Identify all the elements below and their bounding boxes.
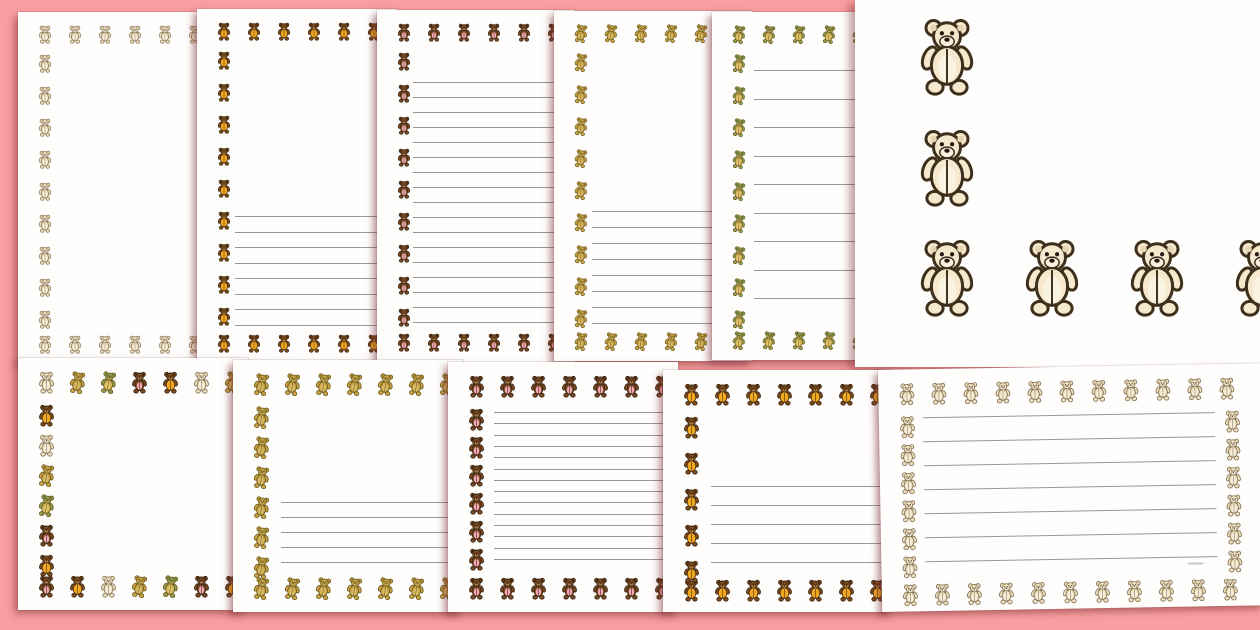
writing-line (281, 532, 455, 533)
teddy-bear-icon (530, 577, 547, 600)
teddy-bear-icon (603, 23, 620, 44)
teddy-bear-icon (683, 524, 700, 547)
teddy-bear-icon (899, 415, 916, 438)
teddy-bear-icon (457, 23, 471, 42)
writing-line (923, 412, 1215, 418)
teddy-bear-icon (427, 23, 441, 42)
writing-line (281, 502, 455, 503)
teddy-bear-icon (38, 371, 55, 394)
teddy-bear-icon (337, 334, 351, 353)
teddy-bear-icon (38, 150, 52, 169)
writing-line (235, 216, 397, 217)
teddy-bear-icon (38, 575, 55, 598)
teddy-bear-icon (930, 382, 947, 405)
teddy-bear-icon (217, 179, 231, 198)
teddy-bear-icon (158, 335, 172, 354)
teddy-bear-icon (731, 85, 748, 106)
teddy-bear-icon (251, 495, 271, 520)
writing-line (494, 525, 670, 526)
teddy-bear-icon (406, 576, 426, 601)
teddy-bear-icon (821, 330, 838, 351)
teddy-bear-icon (900, 471, 917, 494)
teddy-bear-icon (282, 576, 302, 601)
teddy-bear-icon (821, 24, 838, 45)
teddy-bear-icon (1186, 377, 1203, 400)
teddy-bear-icon (731, 117, 748, 138)
writing-line (413, 157, 575, 158)
teddy-bear-icon (158, 25, 172, 44)
teddy-bear-icon (1022, 237, 1082, 318)
writing-line (924, 484, 1216, 490)
teddy-bear-icon (397, 276, 411, 295)
teddy-bear-icon (838, 579, 855, 602)
teddy-bear-icon (251, 372, 271, 397)
teddy-bear-icon (573, 116, 590, 137)
teddy-bear-icon (487, 333, 501, 352)
teddy-bear-icon (1026, 380, 1043, 403)
teddy-bear-icon (307, 22, 321, 41)
teddy-bear-icon (573, 308, 590, 329)
teddy-bear-icon (1232, 237, 1260, 318)
teddy-bear-icon (731, 309, 748, 330)
teddy-bear-icon (1154, 378, 1171, 401)
writing-line (413, 82, 575, 83)
teddy-bear-icon (573, 331, 590, 352)
writing-line (413, 217, 575, 218)
teddy-bear-icon (966, 582, 983, 605)
teddy-bear-icon (468, 492, 485, 515)
writing-line (494, 412, 670, 413)
teddy-bear-icon (1030, 581, 1047, 604)
teddy-bear-icon (838, 383, 855, 406)
teddy-bear-icon (761, 24, 778, 45)
teddy-bear-icon (98, 25, 112, 44)
writing-line (235, 247, 397, 248)
teddy-bear-icon (776, 383, 793, 406)
writing-line (413, 187, 575, 188)
teddy-bear-icon (468, 375, 485, 398)
writing-line (711, 524, 885, 525)
teddy-bear-icon (397, 84, 411, 103)
teddy-bear-icon (68, 335, 82, 354)
teddy-bear-icon (337, 22, 351, 41)
teddy-bear-icon (251, 435, 271, 460)
teddy-bear-icon (38, 554, 55, 577)
teddy-bear-icon (962, 381, 979, 404)
teddy-bear-icon (1224, 438, 1241, 461)
teddy-bear-icon (683, 560, 700, 583)
teddy-bear-icon (406, 372, 426, 397)
teddy-bear-icon (683, 416, 700, 439)
teddy-bear-icon (131, 371, 148, 394)
teddy-bear-icon (397, 180, 411, 199)
writing-line (235, 309, 397, 310)
writing-line (925, 556, 1217, 562)
writing-line (494, 480, 670, 481)
page-landscape-orange-halflined (663, 370, 893, 612)
teddy-bear-icon (573, 148, 590, 169)
teddy-bear-icon (427, 333, 441, 352)
teddy-bear-icon (128, 335, 142, 354)
page-landscape-mixed-blank (18, 358, 248, 610)
teddy-bear-icon (731, 330, 748, 351)
teddy-bear-icon (1126, 579, 1143, 602)
teddy-bear-icon (917, 16, 977, 97)
teddy-bear-icon (592, 375, 609, 398)
teddy-bear-icon (807, 579, 824, 602)
teddy-bear-icon (129, 574, 149, 599)
teddy-bear-icon (731, 24, 748, 45)
page-zoomed-page-corner (855, 0, 1260, 367)
teddy-bear-icon (247, 22, 261, 41)
writing-line (281, 562, 455, 563)
teddy-bear-icon (468, 464, 485, 487)
writing-line (924, 460, 1216, 466)
teddy-bear-icon (468, 577, 485, 600)
teddy-bear-icon (902, 583, 919, 606)
teddy-bear-icon (900, 499, 917, 522)
teddy-bear-icon (731, 277, 748, 298)
writing-line (711, 505, 885, 506)
page-portrait-orange-halflined (197, 9, 397, 363)
writing-line (413, 277, 575, 278)
teddy-bear-icon (633, 23, 650, 44)
teddy-bear-icon (499, 577, 516, 600)
teddy-bear-icon (745, 383, 762, 406)
teddy-bear-icon (397, 212, 411, 231)
teddy-bear-icon (1190, 578, 1207, 601)
teddy-bear-icon (573, 23, 590, 44)
teddy-bear-icon (397, 148, 411, 167)
teddy-bear-icon (38, 246, 52, 265)
teddy-bear-icon (761, 330, 778, 351)
teddy-bear-icon (313, 372, 333, 397)
writing-line (925, 508, 1217, 514)
page-landscape-gold-halflined (233, 360, 463, 612)
page-landscape-cream-fully-lined (878, 363, 1260, 612)
teddy-bear-icon (38, 182, 52, 201)
teddy-bear-icon (251, 405, 271, 430)
teddy-bear-icon (38, 335, 52, 354)
writing-line (413, 247, 575, 248)
teddy-bear-icon (38, 54, 52, 73)
teddy-bear-icon (517, 333, 531, 352)
teddy-bear-icon (128, 25, 142, 44)
teddy-bear-icon (67, 370, 87, 395)
teddy-bear-icon (683, 488, 700, 511)
teddy-bear-icon (251, 555, 271, 580)
teddy-bear-icon (573, 180, 590, 201)
teddy-bear-icon (573, 84, 590, 105)
teddy-bear-icon (1158, 579, 1175, 602)
writing-line (494, 559, 670, 560)
teddy-bear-icon (1222, 578, 1239, 601)
writing-line (413, 307, 575, 308)
writing-line (235, 278, 397, 279)
teddy-bear-icon (714, 579, 731, 602)
writing-line (711, 486, 885, 487)
writing-line (494, 502, 670, 503)
teddy-bear-icon (193, 575, 210, 598)
teddy-bear-icon (217, 51, 231, 70)
teddy-bear-icon (251, 576, 271, 601)
teddy-bear-icon (38, 404, 55, 427)
writing-line (494, 491, 670, 492)
teddy-bear-icon (1094, 580, 1111, 603)
teddy-bear-icon (247, 334, 261, 353)
teddy-bear-icon (282, 372, 302, 397)
teddy-bear-icon (38, 310, 52, 329)
teddy-bear-icon (251, 465, 271, 490)
teddy-bear-icon (901, 527, 918, 550)
teddy-bear-icon (573, 276, 590, 297)
teddy-bear-icon (397, 333, 411, 352)
teddy-bear-icon (397, 52, 411, 71)
teddy-bear-icon (468, 436, 485, 459)
teddy-bear-icon (731, 53, 748, 74)
writing-line (235, 232, 397, 233)
teddy-bear-icon (468, 548, 485, 571)
teddy-bear-icon (693, 23, 710, 44)
teddy-bear-icon (530, 375, 547, 398)
teddy-bear-icon (683, 383, 700, 406)
writing-line (413, 97, 575, 98)
writing-line (494, 423, 670, 424)
teddy-bear-icon (731, 245, 748, 266)
teddy-bear-icon (683, 452, 700, 475)
teddy-bear-icon (38, 25, 52, 44)
teddy-bear-icon (901, 555, 918, 578)
page-portrait-pink-fully-lined (377, 10, 575, 362)
teddy-bear-icon (193, 371, 210, 394)
teddy-bear-icon (38, 434, 55, 457)
teddy-bear-icon (38, 86, 52, 105)
teddy-bear-icon (38, 524, 55, 547)
teddy-bear-icon (307, 334, 321, 353)
teddy-bear-icon (714, 383, 731, 406)
teddy-bear-icon (791, 330, 808, 351)
teddy-bear-icon (277, 22, 291, 41)
teddy-bear-icon (375, 372, 395, 397)
teddy-bear-icon (603, 331, 620, 352)
page-borders-preview-image (0, 0, 1260, 630)
writing-line (494, 514, 670, 515)
teddy-bear-icon (917, 237, 977, 318)
writing-line (494, 548, 670, 549)
writing-line (413, 322, 575, 323)
teddy-bear-icon (313, 576, 333, 601)
teddy-bear-icon (1218, 377, 1235, 400)
teddy-bear-icon (100, 575, 117, 598)
writing-line (923, 436, 1215, 442)
teddy-bear-icon (160, 574, 180, 599)
teddy-bear-icon (917, 127, 977, 208)
teddy-bear-icon (457, 333, 471, 352)
writing-line (711, 562, 885, 563)
writing-line (413, 127, 575, 128)
teddy-bear-icon (36, 463, 56, 488)
writing-line (925, 532, 1217, 538)
teddy-bear-icon (633, 331, 650, 352)
teddy-bear-icon (791, 24, 808, 45)
teddy-bear-icon (397, 116, 411, 135)
teddy-bear-icon (98, 370, 118, 395)
teddy-bear-icon (375, 576, 395, 601)
teddy-bear-icon (934, 583, 951, 606)
teddy-bear-icon (68, 25, 82, 44)
teddy-bear-icon (1225, 494, 1242, 517)
teddy-bear-icon (36, 493, 56, 518)
teddy-bear-icon (217, 22, 231, 41)
teddy-bear-icon (468, 520, 485, 543)
teddy-bear-icon (98, 335, 112, 354)
teddy-bear-icon (397, 23, 411, 42)
writing-line (235, 325, 397, 326)
teddy-bear-icon (217, 307, 231, 326)
teddy-bear-icon (663, 23, 680, 44)
teddy-bear-icon (899, 443, 916, 466)
page-landscape-pink-fully-lined (448, 362, 678, 612)
teddy-bear-icon (162, 371, 179, 394)
teddy-bear-icon (217, 211, 231, 230)
teddy-bear-icon (517, 23, 531, 42)
teddy-bear-icon (592, 577, 609, 600)
teddy-bear-icon (277, 334, 291, 353)
teddy-bear-icon (217, 147, 231, 166)
teddy-bear-icon (1226, 522, 1243, 545)
faint-watermark-mark (1187, 562, 1203, 564)
teddy-bear-icon (561, 375, 578, 398)
writing-line (494, 457, 670, 458)
writing-line (413, 262, 575, 263)
teddy-bear-icon (1058, 380, 1075, 403)
teddy-bear-icon (69, 575, 86, 598)
teddy-bear-icon (561, 577, 578, 600)
teddy-bear-icon (731, 181, 748, 202)
writing-line (281, 517, 455, 518)
teddy-bear-icon (998, 582, 1015, 605)
teddy-bear-icon (1122, 378, 1139, 401)
teddy-bear-icon (397, 308, 411, 327)
teddy-bear-icon (217, 243, 231, 262)
teddy-bear-icon (217, 275, 231, 294)
teddy-bear-icon (468, 408, 485, 431)
writing-line (494, 536, 670, 537)
writing-line (494, 469, 670, 470)
teddy-bear-icon (731, 149, 748, 170)
teddy-bear-icon (487, 23, 501, 42)
teddy-bear-icon (573, 52, 590, 73)
teddy-bear-icon (1062, 581, 1079, 604)
teddy-bear-icon (344, 372, 364, 397)
teddy-bear-icon (1090, 379, 1107, 402)
teddy-bear-icon (731, 213, 748, 234)
teddy-bear-icon (38, 278, 52, 297)
writing-line (413, 292, 575, 293)
writing-line (235, 263, 397, 264)
writing-line (413, 142, 575, 143)
teddy-bear-icon (217, 334, 231, 353)
writing-line (413, 172, 575, 173)
teddy-bear-icon (994, 381, 1011, 404)
writing-line (413, 232, 575, 233)
writing-line (235, 294, 397, 295)
teddy-bear-icon (745, 579, 762, 602)
writing-line (711, 543, 885, 544)
teddy-bear-icon (38, 118, 52, 137)
teddy-bear-icon (807, 383, 824, 406)
writing-line (281, 547, 455, 548)
teddy-bear-icon (623, 577, 640, 600)
teddy-bear-icon (573, 212, 590, 233)
writing-line (413, 202, 575, 203)
teddy-bear-icon (344, 576, 364, 601)
teddy-bear-icon (573, 244, 590, 265)
teddy-bear-icon (499, 375, 516, 398)
teddy-bear-icon (623, 375, 640, 398)
writing-line (413, 112, 575, 113)
teddy-bear-icon (217, 83, 231, 102)
teddy-bear-icon (251, 525, 271, 550)
teddy-bear-icon (217, 115, 231, 134)
teddy-bear-icon (397, 244, 411, 263)
teddy-bear-icon (1226, 550, 1243, 573)
teddy-bear-icon (1225, 466, 1242, 489)
teddy-bear-icon (776, 579, 793, 602)
teddy-bear-icon (1127, 237, 1187, 318)
writing-line (494, 446, 670, 447)
page-portrait-cream-blank (18, 12, 218, 364)
teddy-bear-icon (663, 331, 680, 352)
teddy-bear-icon (898, 382, 915, 405)
teddy-bear-icon (1224, 410, 1241, 433)
teddy-bear-icon (693, 331, 710, 352)
teddy-bear-icon (38, 214, 52, 233)
writing-line (494, 435, 670, 436)
